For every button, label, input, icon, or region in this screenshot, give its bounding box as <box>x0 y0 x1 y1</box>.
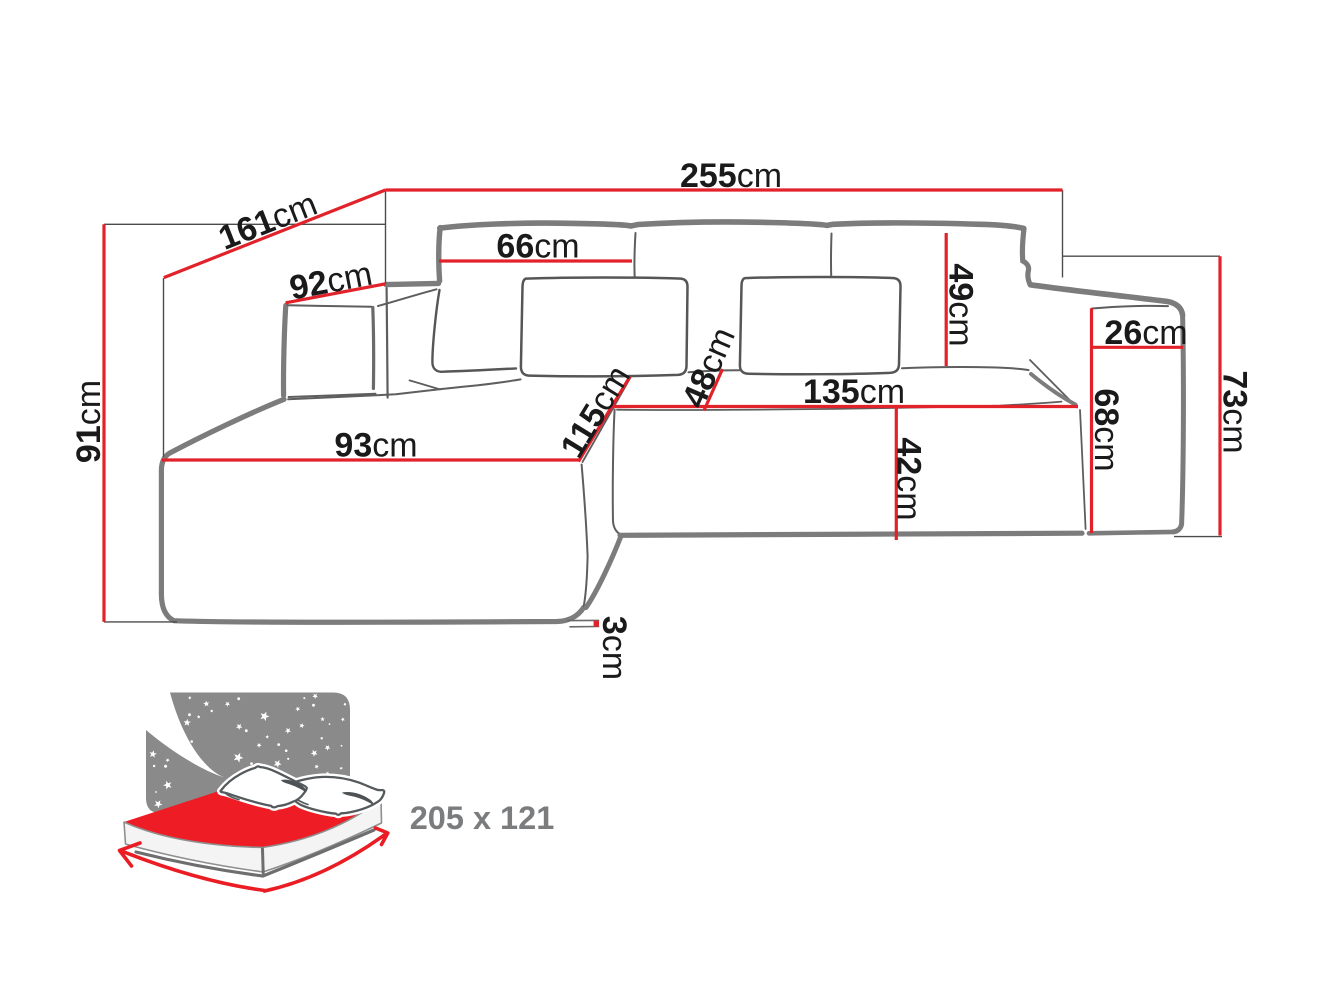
svg-text:66cm: 66cm <box>496 228 579 266</box>
svg-text:26cm: 26cm <box>1104 314 1187 352</box>
svg-text:68cm: 68cm <box>1087 388 1125 471</box>
svg-text:91cm: 91cm <box>70 380 108 463</box>
svg-text:73cm: 73cm <box>1216 370 1254 453</box>
svg-text:93cm: 93cm <box>334 427 417 465</box>
svg-text:42cm: 42cm <box>890 437 928 520</box>
svg-text:49cm: 49cm <box>942 263 980 346</box>
svg-text:255cm: 255cm <box>680 157 782 195</box>
svg-text:3cm: 3cm <box>595 616 633 680</box>
svg-text:205 x 121: 205 x 121 <box>410 800 555 836</box>
svg-text:135cm: 135cm <box>803 373 905 411</box>
